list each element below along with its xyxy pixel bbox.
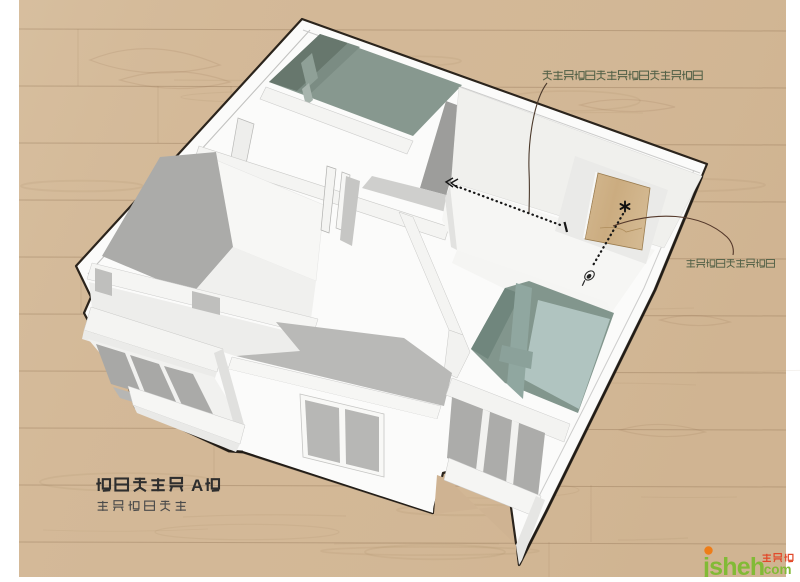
- svg-text:.com: .com: [760, 562, 792, 577]
- svg-text:jsheh: jsheh: [702, 553, 764, 577]
- svg-text:A: A: [191, 476, 203, 495]
